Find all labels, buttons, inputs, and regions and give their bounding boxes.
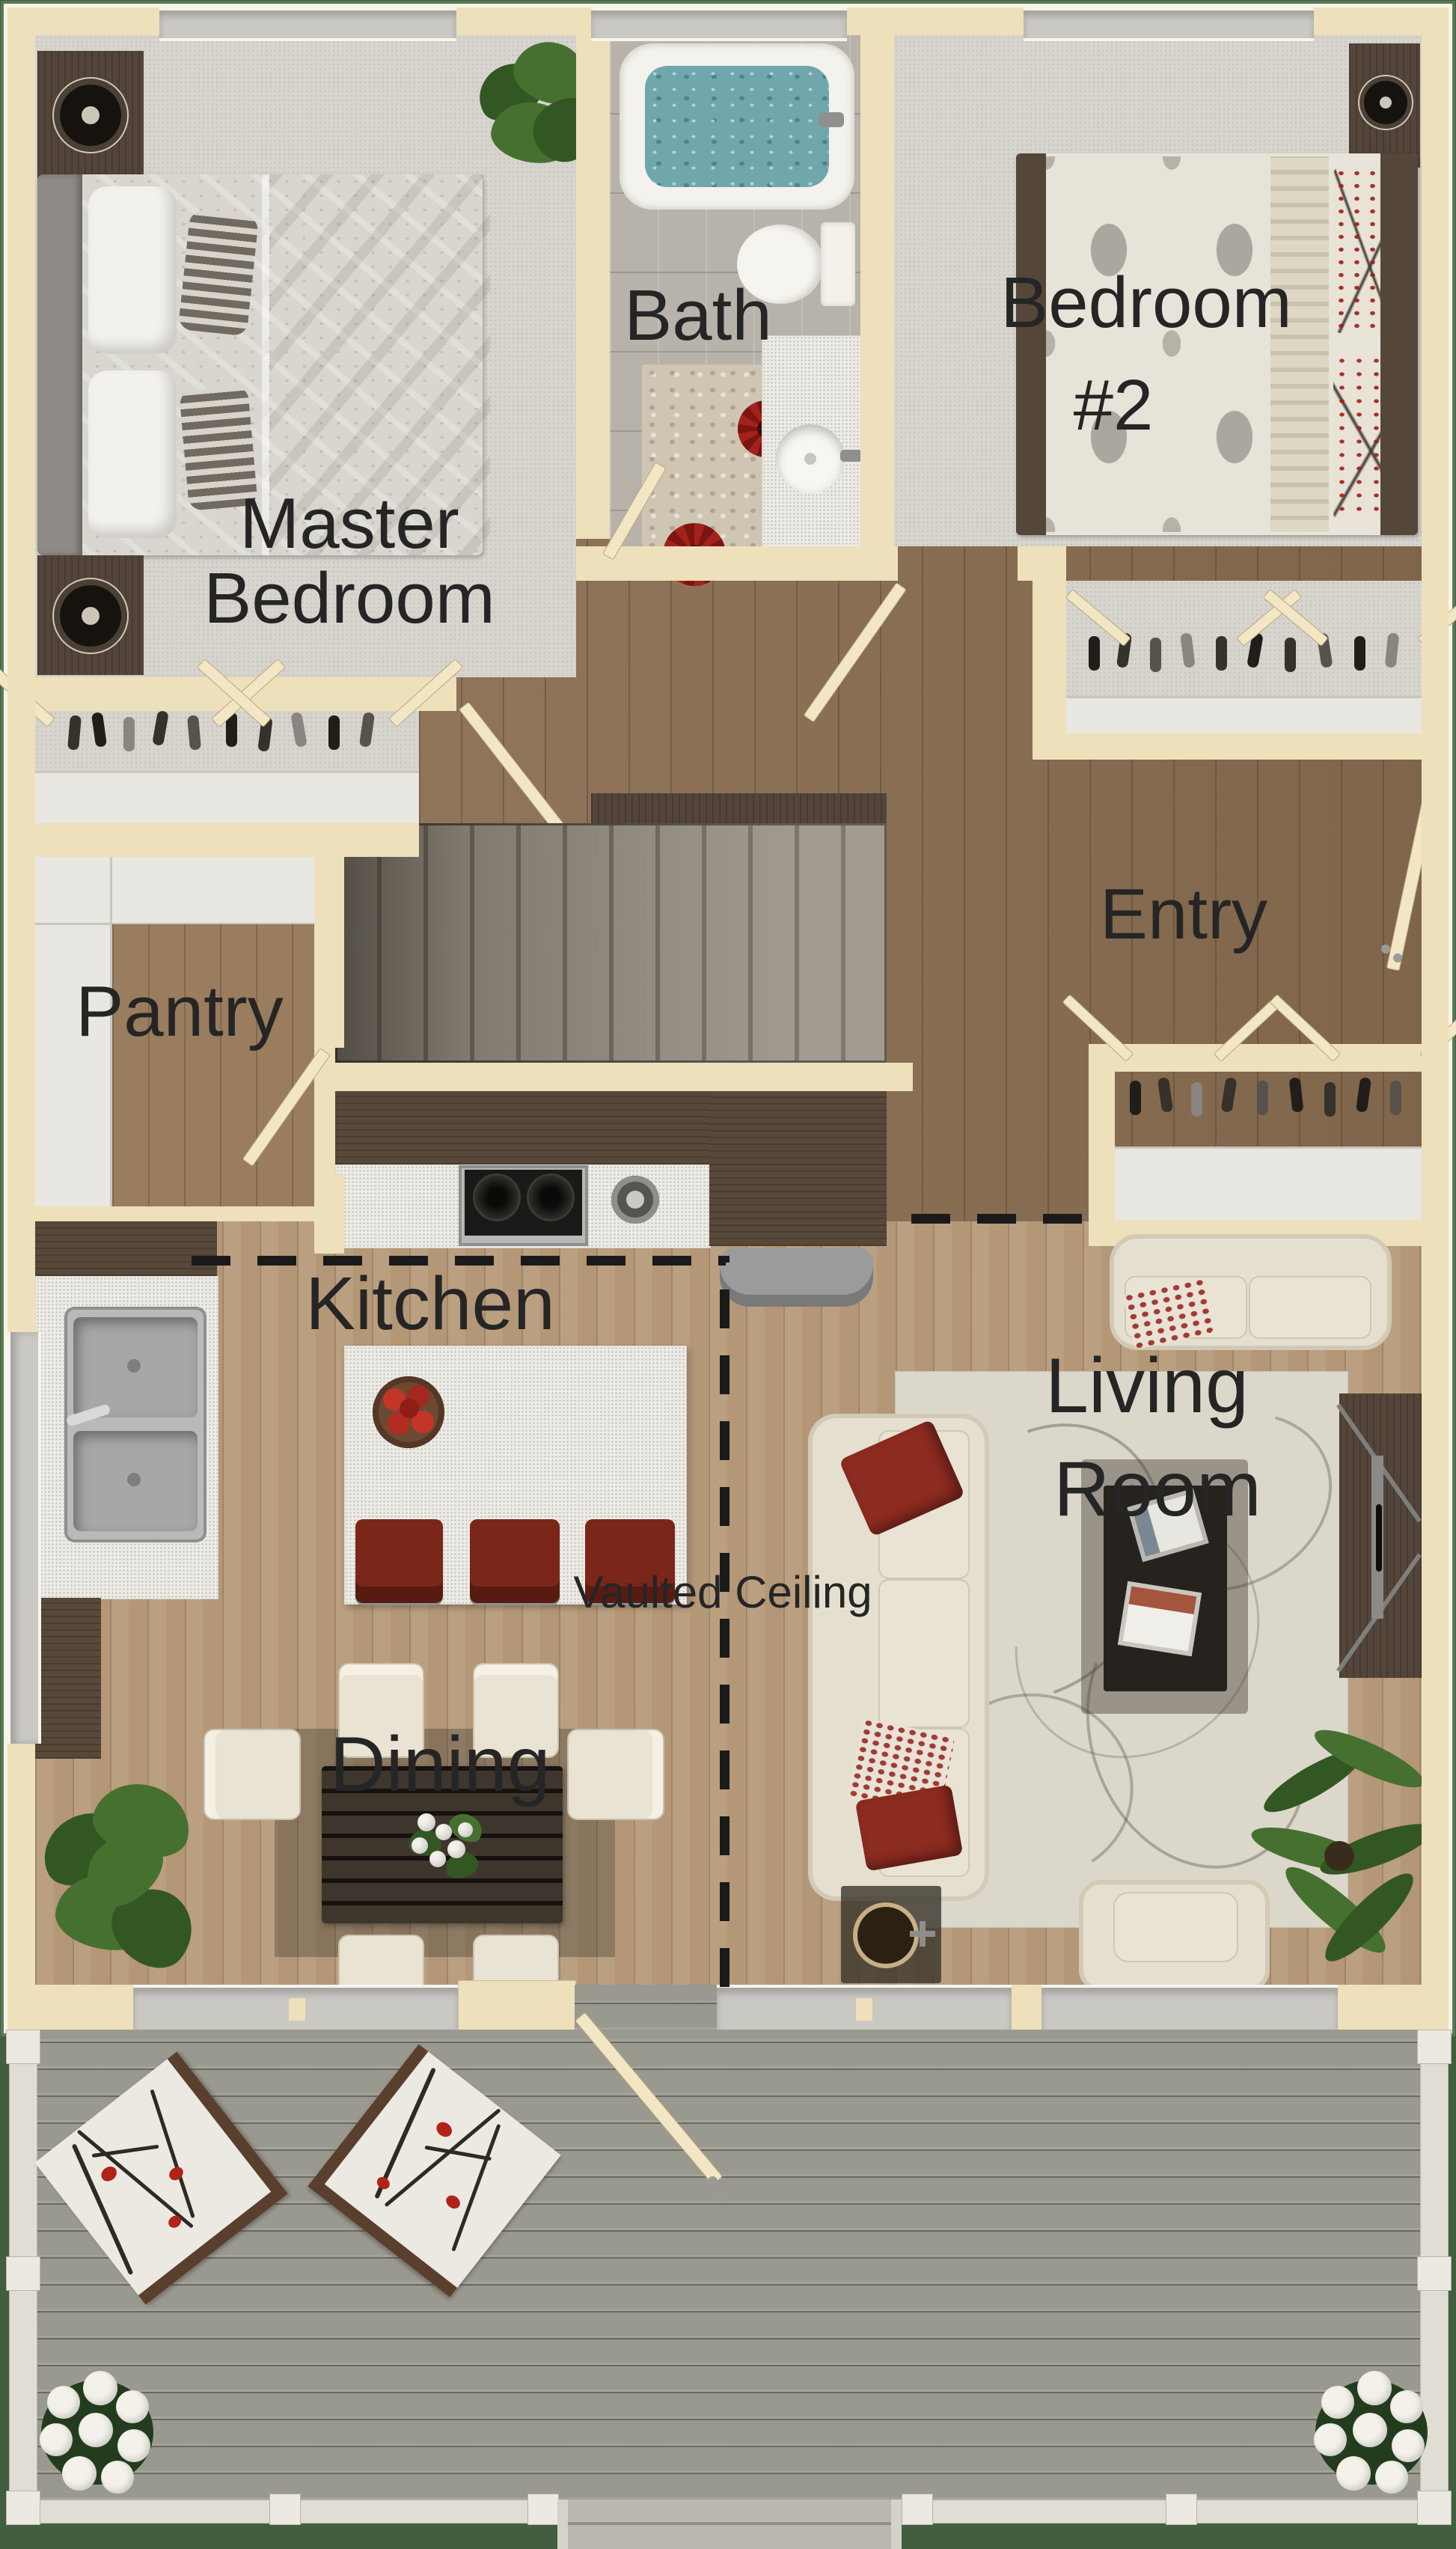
deck: [9, 2030, 1447, 2500]
double-sink: [64, 1307, 207, 1542]
room-label-living-line1: Living: [1045, 1347, 1249, 1425]
speaker-lamp-icon: [60, 585, 121, 647]
floor-plan: Master Bedroom Bath Bedroom #2 Entry Pan…: [0, 0, 1456, 2549]
closet-shelf: [1066, 696, 1422, 736]
nightstand: [1349, 43, 1420, 168]
room-label-master-line2: Bedroom: [204, 563, 495, 635]
room-label-entry: Entry: [1100, 879, 1267, 950]
door-handle-icon: [708, 2176, 718, 2186]
wall: [335, 1063, 913, 1091]
pillow: [88, 186, 177, 354]
sofa: [808, 1414, 989, 1901]
nightstand: [37, 51, 144, 180]
wall: [22, 823, 419, 857]
stair-treads: [335, 823, 887, 1063]
room-label-bedroom2-line1: Bedroom: [1000, 267, 1292, 339]
kitchen-cabinet: [35, 1598, 101, 1759]
window: [1041, 1985, 1338, 2036]
wall: [1089, 1044, 1449, 1072]
bath-rug: [642, 364, 763, 546]
window: [159, 7, 456, 41]
room-label-bath: Bath: [624, 280, 771, 352]
window: [1024, 7, 1314, 41]
room-label-bedroom2-line2: #2: [1074, 370, 1154, 442]
flower-pot: [1308, 2365, 1435, 2500]
burner-icon: [475, 1176, 519, 1219]
room-label-dining: Dining: [330, 1726, 551, 1804]
room-label-living-line2: Room: [1053, 1450, 1261, 1528]
wall: [1033, 546, 1066, 760]
kitchen-back-cabinet: [335, 1091, 709, 1164]
fruit-bowl: [373, 1376, 444, 1448]
palm-plant: [1242, 1721, 1437, 1983]
magazine: [1118, 1581, 1202, 1657]
deck-steps: [557, 2500, 902, 2549]
wall: [576, 546, 898, 581]
window: [717, 1985, 1012, 2036]
railing-post: [1166, 2494, 1197, 2525]
closet-shelf: [1115, 1147, 1422, 1222]
room-label-kitchen: Kitchen: [305, 1266, 555, 1341]
vanity-sink: [776, 424, 845, 493]
room-label-pantry: Pantry: [76, 976, 283, 1048]
tv-console: [1339, 1393, 1422, 1678]
railing-post: [1417, 2030, 1452, 2064]
annotation-vaulted-ceiling: Vaulted Ceiling: [573, 1570, 872, 1615]
stair-stringer: [591, 793, 887, 823]
burner-icon: [529, 1176, 572, 1219]
toilet-tank: [821, 222, 855, 306]
railing-post: [6, 2256, 40, 2291]
bedroom2-closet: [1066, 581, 1422, 733]
cooktop: [459, 1165, 588, 1246]
tub-faucet-icon: [819, 112, 844, 127]
railing-post: [1417, 2256, 1452, 2291]
window: [133, 1985, 458, 2036]
loveseat: [1110, 1234, 1392, 1350]
door-handle-icon: [1393, 953, 1402, 962]
door-jamb: [458, 1980, 576, 2034]
railing-post: [269, 2494, 301, 2525]
door-handle-icon: [717, 2191, 727, 2201]
dining-chair: [567, 1729, 664, 1820]
wall: [314, 1175, 344, 1254]
dining-chair: [204, 1729, 301, 1820]
vaulted-ceiling-boundary: [911, 1214, 1089, 1224]
sink-basin: [73, 1317, 198, 1417]
window: [7, 1332, 41, 1744]
wall: [1089, 1044, 1115, 1246]
speaker-lamp-icon: [1364, 81, 1407, 124]
kitchen-peninsula-cabinet: [709, 1091, 887, 1246]
speaker-lamp-icon: [60, 85, 121, 146]
pantry-floor: [112, 924, 314, 1206]
room-label-master-line1: Master: [239, 488, 459, 560]
bar-stool: [355, 1519, 443, 1603]
sink-basin: [73, 1431, 198, 1531]
railing-post: [902, 2494, 933, 2525]
armchair: [1079, 1880, 1270, 1992]
wall: [314, 857, 344, 1048]
kettle-icon: [857, 1907, 914, 1964]
accent-pillow: [178, 210, 259, 337]
window: [591, 7, 847, 41]
potted-plant: [41, 1785, 198, 1983]
deck-door-opening: [575, 1985, 717, 2030]
kitchen-counter: [35, 1276, 218, 1599]
kitchen-back-counter: [335, 1164, 711, 1248]
railing-post: [527, 2494, 559, 2525]
railing-post: [6, 2030, 40, 2064]
knit-throw: [1270, 156, 1329, 532]
nightstand: [37, 555, 144, 675]
sink-faucet-icon: [840, 450, 863, 462]
bedroom2-bed: [1016, 153, 1418, 535]
centerpiece-flowers: [404, 1807, 486, 1886]
flower-pot: [34, 2365, 161, 2500]
pillow: [88, 370, 177, 538]
damask-duvet: [1046, 156, 1270, 532]
headboard: [37, 174, 82, 555]
exterior-wall: [1422, 7, 1449, 1985]
headboard: [1380, 153, 1418, 535]
door-handle-icon: [1381, 944, 1390, 953]
kitchen-cabinet: [35, 1221, 217, 1276]
bathtub: [620, 43, 854, 210]
wall: [860, 35, 894, 546]
bar-stool: [470, 1519, 560, 1603]
footboard: [1016, 153, 1046, 535]
vaulted-ceiling-boundary: [720, 1256, 729, 1987]
bath-vanity: [762, 335, 862, 548]
tub-water: [645, 66, 829, 187]
entry-closet: [1115, 1072, 1422, 1220]
wall: [1033, 733, 1422, 760]
wall: [576, 35, 610, 445]
side-table: [841, 1886, 941, 1983]
kettle-icon: [611, 1176, 659, 1224]
gray-stool: [720, 1248, 873, 1307]
